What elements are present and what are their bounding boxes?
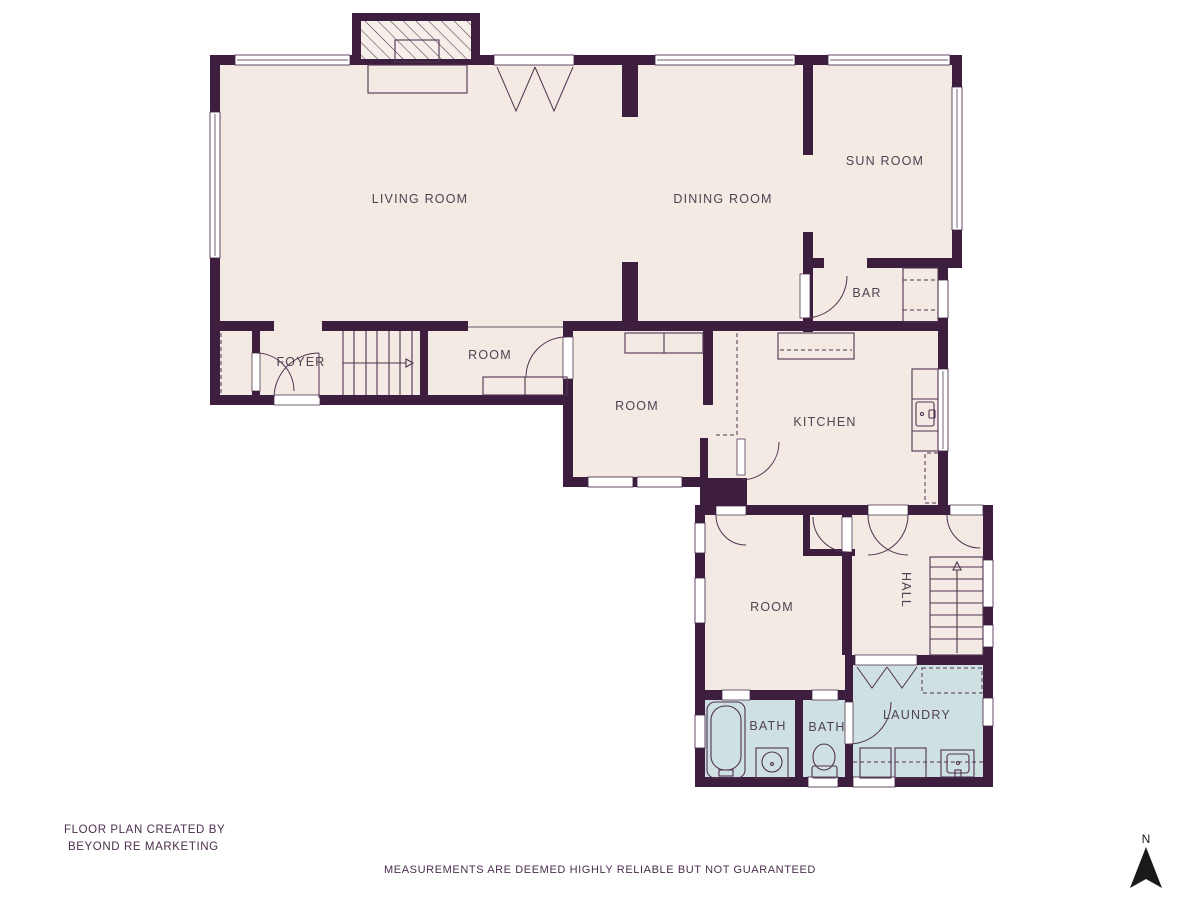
- window: [655, 55, 795, 65]
- window: [938, 280, 948, 318]
- window: [983, 698, 993, 726]
- window: [828, 55, 950, 65]
- room-label-room-2: ROOM: [615, 399, 659, 413]
- bath2-floor: [798, 695, 848, 785]
- window: [637, 477, 682, 487]
- window: [983, 625, 993, 647]
- floor-plan-canvas: LIVING ROOM DINING ROOM SUN ROOM BAR FOY…: [0, 0, 1200, 900]
- north-label: N: [1142, 832, 1151, 846]
- bath1-floor: [700, 695, 800, 785]
- credit-line-2: BEYOND RE MARKETING: [68, 841, 219, 853]
- bath1-door: [722, 690, 750, 700]
- room-label-room-3: ROOM: [750, 600, 794, 614]
- window: [952, 87, 962, 230]
- window: [210, 112, 220, 258]
- north-arrow-icon: [1130, 847, 1162, 888]
- floors: [215, 60, 990, 785]
- room-label-living-room: LIVING ROOM: [372, 192, 469, 206]
- floor-plan-page: LIVING ROOM DINING ROOM SUN ROOM BAR FOY…: [0, 0, 1200, 900]
- north-arrow: N: [1130, 832, 1162, 888]
- window: [235, 55, 350, 65]
- window: [938, 369, 948, 451]
- disclaimer-text: MEASUREMENTS ARE DEEMED HIGHLY RELIABLE …: [384, 864, 816, 876]
- window: [695, 715, 705, 748]
- room-label-sun-room: SUN ROOM: [846, 154, 924, 168]
- room-label-bath-2: BATH: [808, 720, 845, 734]
- room-label-room-1: ROOM: [468, 348, 512, 362]
- room-label-foyer: FOYER: [276, 355, 325, 369]
- bath2-door: [812, 690, 838, 700]
- room-label-dining-room: DINING ROOM: [673, 192, 772, 206]
- room-label-bar: BAR: [852, 286, 881, 300]
- room-label-laundry: LAUNDRY: [883, 708, 951, 722]
- laundry-floor: [848, 660, 988, 785]
- room-label-bath-1: BATH: [749, 719, 786, 733]
- credit-line-1: FLOOR PLAN CREATED BY: [64, 824, 225, 836]
- window: [695, 578, 705, 623]
- room-label-hall: HALL: [899, 572, 913, 608]
- window: [695, 523, 705, 553]
- window: [588, 477, 633, 487]
- room-label-kitchen: KITCHEN: [793, 415, 856, 429]
- footer: FLOOR PLAN CREATED BY BEYOND RE MARKETIN…: [64, 824, 816, 876]
- window: [983, 560, 993, 607]
